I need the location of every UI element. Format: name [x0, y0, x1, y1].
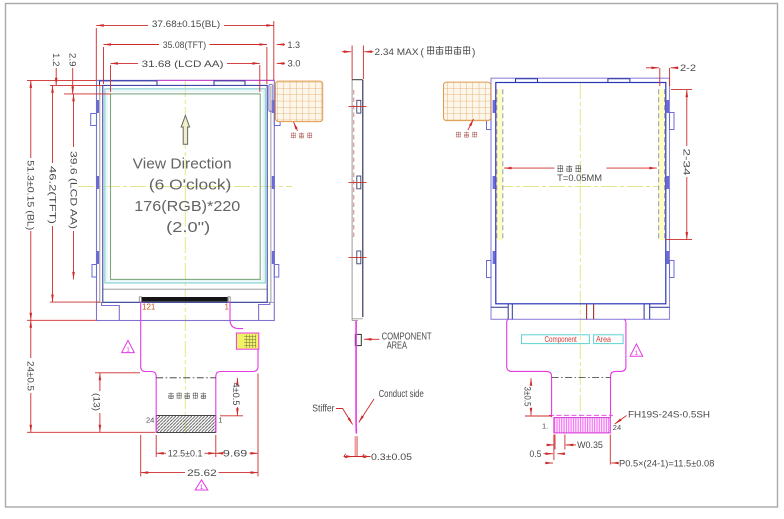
- svg-text:176(RGB)*220: 176(RGB)*220: [134, 198, 240, 215]
- svg-text:P0.5×(24-1)=11.5±0.08: P0.5×(24-1)=11.5±0.08: [619, 459, 714, 469]
- svg-text:37.68±0.15(BL): 37.68±0.15(BL): [152, 19, 220, 29]
- svg-text:2.34 MAX: 2.34 MAX: [375, 47, 419, 57]
- svg-text:0.3±0.05: 0.3±0.05: [371, 452, 412, 462]
- svg-text:24: 24: [613, 423, 621, 432]
- svg-text:(2.0"): (2.0"): [166, 219, 210, 236]
- svg-text:0.5: 0.5: [530, 449, 542, 459]
- svg-text:39.6 (LCD AA): 39.6 (LCD AA): [68, 151, 78, 229]
- svg-text:4±0.5: 4±0.5: [231, 383, 241, 406]
- svg-text:9.69: 9.69: [223, 448, 247, 458]
- svg-text:46.2(TFT): 46.2(TFT): [47, 166, 57, 224]
- svg-text:Area: Area: [596, 334, 611, 344]
- svg-text:3±0.5: 3±0.5: [522, 387, 532, 407]
- svg-text:51.3±0.15 (BL): 51.3±0.15 (BL): [26, 160, 36, 230]
- svg-text:Stiffer: Stiffer: [312, 404, 335, 415]
- svg-text:2-2: 2-2: [680, 63, 696, 73]
- svg-text:1: 1: [635, 350, 639, 357]
- svg-text:3.0: 3.0: [288, 59, 301, 69]
- svg-text:1: 1: [200, 484, 204, 491]
- svg-text:31.68 (LCD AA): 31.68 (LCD AA): [142, 59, 224, 69]
- svg-text:T=0.05MM: T=0.05MM: [557, 173, 602, 183]
- svg-text:FH19S-24S-0.5SH: FH19S-24S-0.5SH: [628, 410, 710, 420]
- svg-text:121: 121: [142, 303, 156, 312]
- svg-text:25.62: 25.62: [187, 468, 217, 478]
- svg-text:Conduct side: Conduct side: [379, 389, 425, 400]
- svg-text:1.3: 1.3: [288, 40, 301, 50]
- svg-text:Component: Component: [545, 334, 578, 344]
- svg-text:1: 1: [218, 416, 222, 425]
- svg-text:(13): (13): [92, 393, 102, 411]
- svg-text:View Direction: View Direction: [133, 156, 232, 173]
- svg-text:2.9: 2.9: [68, 53, 78, 67]
- svg-text:(6 O'clock): (6 O'clock): [149, 177, 231, 194]
- svg-text:35.08(TFT): 35.08(TFT): [163, 40, 206, 50]
- svg-text:1.: 1.: [542, 422, 548, 431]
- svg-text:1: 1: [225, 303, 230, 312]
- svg-text:1: 1: [126, 347, 130, 354]
- svg-text:2-34: 2-34: [682, 149, 692, 176]
- svg-text:W0.35: W0.35: [577, 440, 603, 450]
- svg-text:12.5±0.1: 12.5±0.1: [168, 448, 203, 458]
- svg-text:24±0.5: 24±0.5: [26, 361, 36, 391]
- svg-text:AREA: AREA: [387, 341, 408, 352]
- svg-text:): ): [472, 48, 475, 59]
- svg-text:1.2: 1.2: [51, 53, 61, 67]
- svg-text:24: 24: [146, 416, 154, 425]
